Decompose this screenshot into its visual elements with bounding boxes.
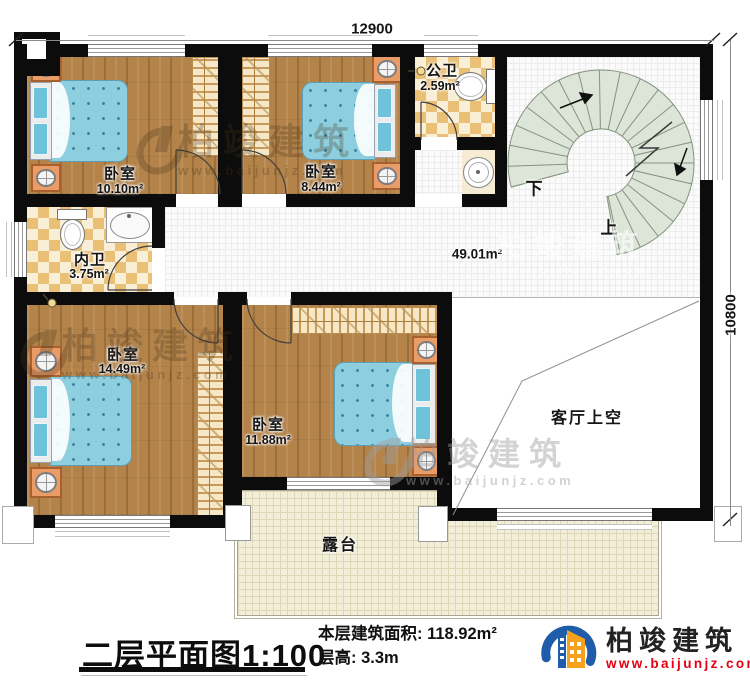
exterior-ledge [714, 506, 742, 542]
bed-bottom-left [30, 376, 130, 464]
floor-plan-sheet: 12900 10800 卧室 10.10m² 卧室 8.44m² 公卫 2.59… [0, 0, 750, 687]
window-sill [717, 100, 723, 180]
wall [390, 477, 452, 490]
wall [218, 44, 242, 207]
window-sill [55, 531, 170, 537]
wall [462, 194, 507, 207]
wall [218, 292, 247, 305]
nightstand [372, 55, 402, 83]
wall [700, 180, 713, 521]
wall [478, 44, 713, 57]
dimension-depth: 10800 [723, 294, 740, 336]
toilet-icon [60, 219, 85, 250]
floor-height-value: 3.3m [361, 649, 399, 667]
wall [14, 194, 176, 207]
nightstand [30, 346, 62, 377]
floor-stats: 本层建筑面积: 118.92m² 层高: 3.3m [318, 623, 497, 671]
wall [400, 137, 421, 150]
room-label-public-bath: 公卫 [426, 60, 458, 81]
room-label-living-void: 客厅上空 [551, 404, 623, 428]
bed-top-left [30, 80, 128, 162]
company-logo-icon [538, 618, 598, 680]
plan-title-underline [79, 667, 305, 672]
company-logo: 柏竣建筑 www.baijunjz.com [538, 618, 750, 680]
room-label-bedroom-bottom-mid: 卧室 [252, 414, 284, 435]
hall-area-label: 49.01m² [452, 247, 502, 262]
wardrobe [292, 307, 439, 334]
wall [700, 44, 713, 100]
window [14, 222, 27, 277]
wall [457, 137, 495, 150]
room-area-bedroom-bottom-mid: 11.88m² [245, 433, 291, 447]
wall [372, 44, 424, 57]
faucet-icon [127, 214, 131, 218]
room-area-bedroom-top-left: 10.10m² [97, 182, 144, 196]
window-sill [6, 222, 12, 277]
room-area-inner-bath: 3.75m² [69, 267, 109, 281]
window [424, 44, 478, 57]
window-sill [497, 524, 652, 530]
living-room-void-floor [452, 297, 700, 509]
bath-vestibule-floor [410, 150, 462, 194]
terrace-post [418, 506, 448, 542]
room-label-terrace: 露台 [322, 531, 358, 555]
dimension-line-top [16, 40, 714, 41]
company-url: www.baijunjz.com [606, 656, 750, 671]
room-area-public-bath: 2.59m² [420, 79, 460, 93]
wall [223, 292, 242, 528]
wall [400, 44, 415, 207]
nightstand [372, 162, 402, 190]
window [88, 44, 185, 57]
wardrobe [242, 57, 270, 156]
room-label-bedroom-top-mid: 卧室 [305, 161, 337, 182]
dimension-width: 12900 [351, 21, 393, 38]
wall [495, 44, 507, 207]
wall [14, 292, 174, 305]
wall [286, 194, 400, 207]
wall [152, 207, 165, 248]
plan-title-underline-shadow [81, 675, 307, 676]
window [268, 44, 372, 57]
terrace-sliding-door [287, 477, 390, 490]
stair-up-label: 上 [601, 214, 618, 239]
wardrobe [197, 352, 224, 517]
nightstand [30, 467, 62, 498]
exterior-ledge [2, 506, 34, 544]
wall [14, 277, 27, 528]
window [700, 100, 713, 180]
floor-height-label: 层高: [318, 649, 357, 667]
wall [443, 508, 497, 521]
wall [652, 508, 713, 521]
stair-down-label: 下 [526, 175, 543, 200]
room-area-bedroom-top-mid: 8.44m² [301, 180, 341, 194]
wall [291, 292, 452, 305]
nightstand [31, 164, 61, 192]
company-name: 柏竣建筑 [606, 627, 750, 655]
floor-area-label: 本层建筑面积: [318, 625, 423, 643]
wardrobe [192, 57, 220, 156]
basin-drain [476, 170, 480, 174]
wall [223, 477, 287, 490]
floor-area-value: 118.92m² [427, 625, 497, 643]
window [497, 508, 652, 521]
room-area-bedroom-bottom-left: 14.49m² [99, 362, 146, 376]
room-label-bedroom-top-left: 卧室 [104, 163, 136, 184]
bed-top-mid [302, 82, 396, 160]
window [55, 515, 170, 528]
terrace-post [225, 505, 251, 541]
dimension-line-right [730, 40, 731, 526]
bed-bottom-mid [334, 362, 437, 444]
